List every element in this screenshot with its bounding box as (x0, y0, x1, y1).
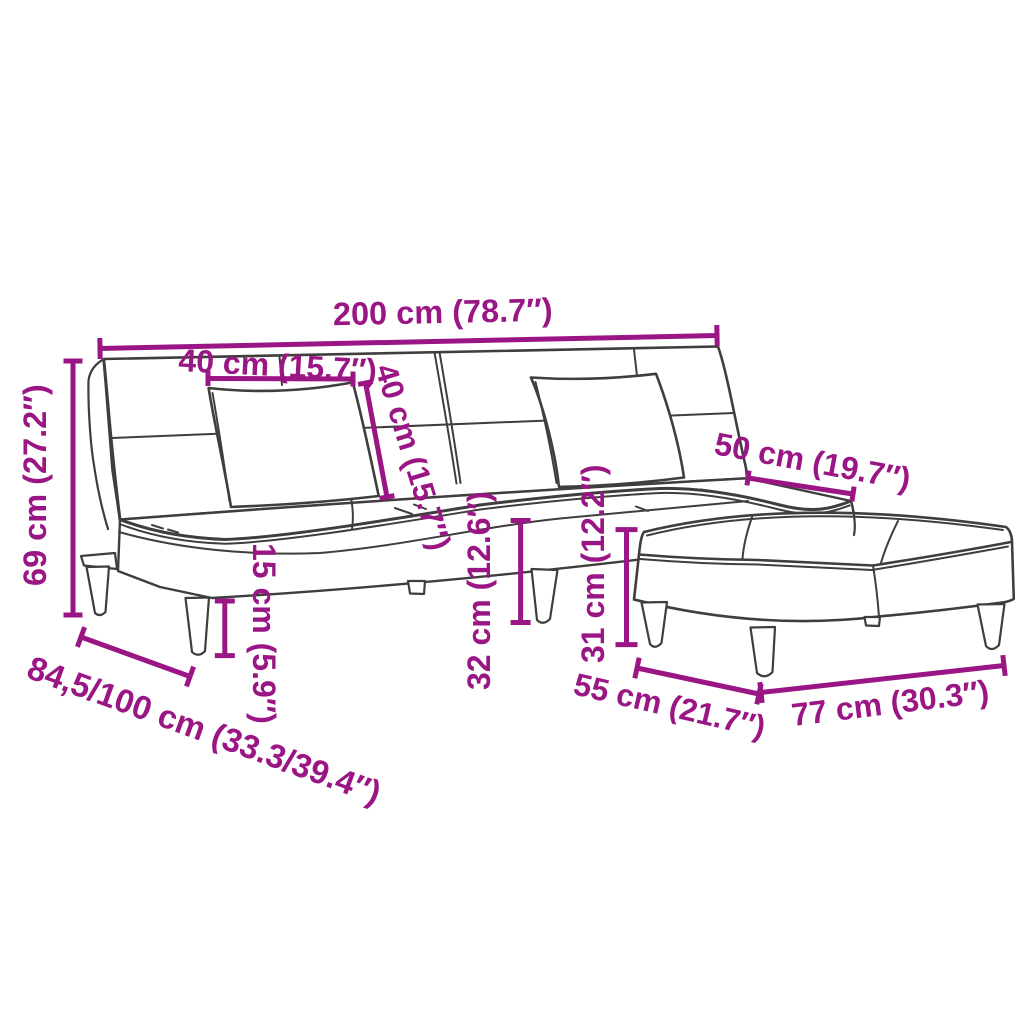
svg-text:31 cm (12.2″): 31 cm (12.2″) (575, 464, 611, 663)
svg-text:69 cm (27.2″): 69 cm (27.2″) (17, 384, 53, 586)
svg-text:200 cm (78.7″): 200 cm (78.7″) (333, 292, 553, 333)
svg-text:15 cm (5.9″): 15 cm (5.9″) (246, 543, 282, 724)
svg-text:32 cm (12.6″): 32 cm (12.6″) (461, 491, 497, 690)
